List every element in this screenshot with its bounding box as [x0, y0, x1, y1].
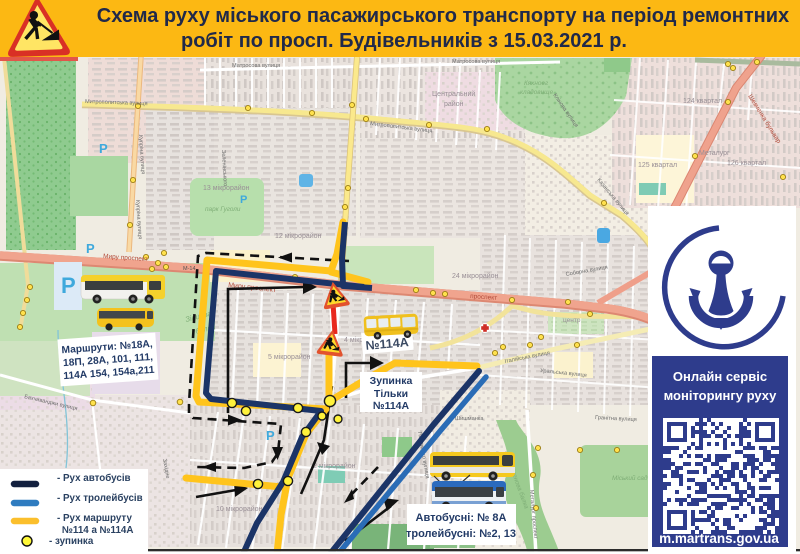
svg-text:Онлайн сервіс: Онлайн сервіс — [673, 369, 767, 384]
svg-text:Міський сад: Міський сад — [612, 474, 648, 482]
svg-text:- зупинка: - зупинка — [49, 536, 94, 547]
svg-text:13 мікрорайон: 13 мікрорайон — [203, 184, 250, 192]
svg-text:5 мікрорайон: 5 мікрорайон — [268, 353, 311, 361]
svg-text:- Рух тролейбусів: - Рух тролейбусів — [57, 493, 143, 504]
svg-text:Металург: Металург — [699, 150, 730, 157]
svg-text:P: P — [266, 428, 275, 443]
svg-text:моніторингу руху: моніторингу руху — [664, 388, 778, 403]
svg-text:- Рух маршруту: - Рух маршруту — [57, 513, 132, 524]
svg-text:126 квартал: 126 квартал — [727, 160, 766, 167]
svg-text:12 мікрорайон: 12 мікрорайон — [275, 232, 322, 240]
svg-text:парк Гуголи: парк Гуголи — [205, 206, 241, 213]
svg-text:10 мікрорайон: 10 мікрорайон — [216, 505, 263, 513]
svg-text:Тільки: Тільки — [374, 388, 408, 400]
svg-text:Кяхноег: Кяхноег — [524, 80, 549, 87]
svg-text:- Рух автобусів: - Рух автобусів — [57, 473, 131, 484]
svg-text:Шишманка: Шишманка — [455, 416, 484, 422]
svg-text:Матросова вулиця: Матросова вулиця — [452, 59, 500, 65]
svg-text:P: P — [99, 141, 108, 156]
svg-text:124 квартал: 124 квартал — [683, 98, 722, 105]
svg-text:24 мікрорайон: 24 мікрорайон — [452, 272, 499, 280]
svg-text:робіт по просп. Будівельників: робіт по просп. Будівельників з 15.03.20… — [181, 30, 627, 52]
svg-text:P: P — [86, 241, 95, 256]
svg-text:район: район — [444, 100, 464, 108]
svg-text:№114 а №114А: №114 а №114А — [62, 525, 133, 536]
svg-text:m.martrans.gov.ua: m.martrans.gov.ua — [659, 531, 779, 546]
svg-text:М-14: М-14 — [183, 266, 196, 272]
svg-text:Автобусні: № 8А: Автобусні: № 8А — [416, 512, 507, 524]
svg-text:2 мікрорайон: 2 мікрорайон — [313, 462, 356, 470]
svg-text:P: P — [61, 273, 76, 298]
svg-text:центр: центр — [563, 317, 581, 324]
svg-text:Центральний: Центральний — [432, 90, 475, 98]
svg-text:тролейбусні: №2, 13: тролейбусні: №2, 13 — [406, 528, 516, 540]
svg-text:кладовище: кладовище — [520, 88, 554, 96]
svg-text:Схема руху міського пасажирськ: Схема руху міського пасажирського трансп… — [97, 5, 789, 27]
svg-text:125 квартал: 125 квартал — [638, 162, 677, 169]
svg-text:Матросова вулиця: Матросова вулиця — [232, 63, 280, 69]
svg-text:Зупинка: Зупинка — [370, 375, 413, 387]
svg-text:№114А: №114А — [373, 400, 410, 412]
svg-text:P: P — [240, 194, 247, 206]
